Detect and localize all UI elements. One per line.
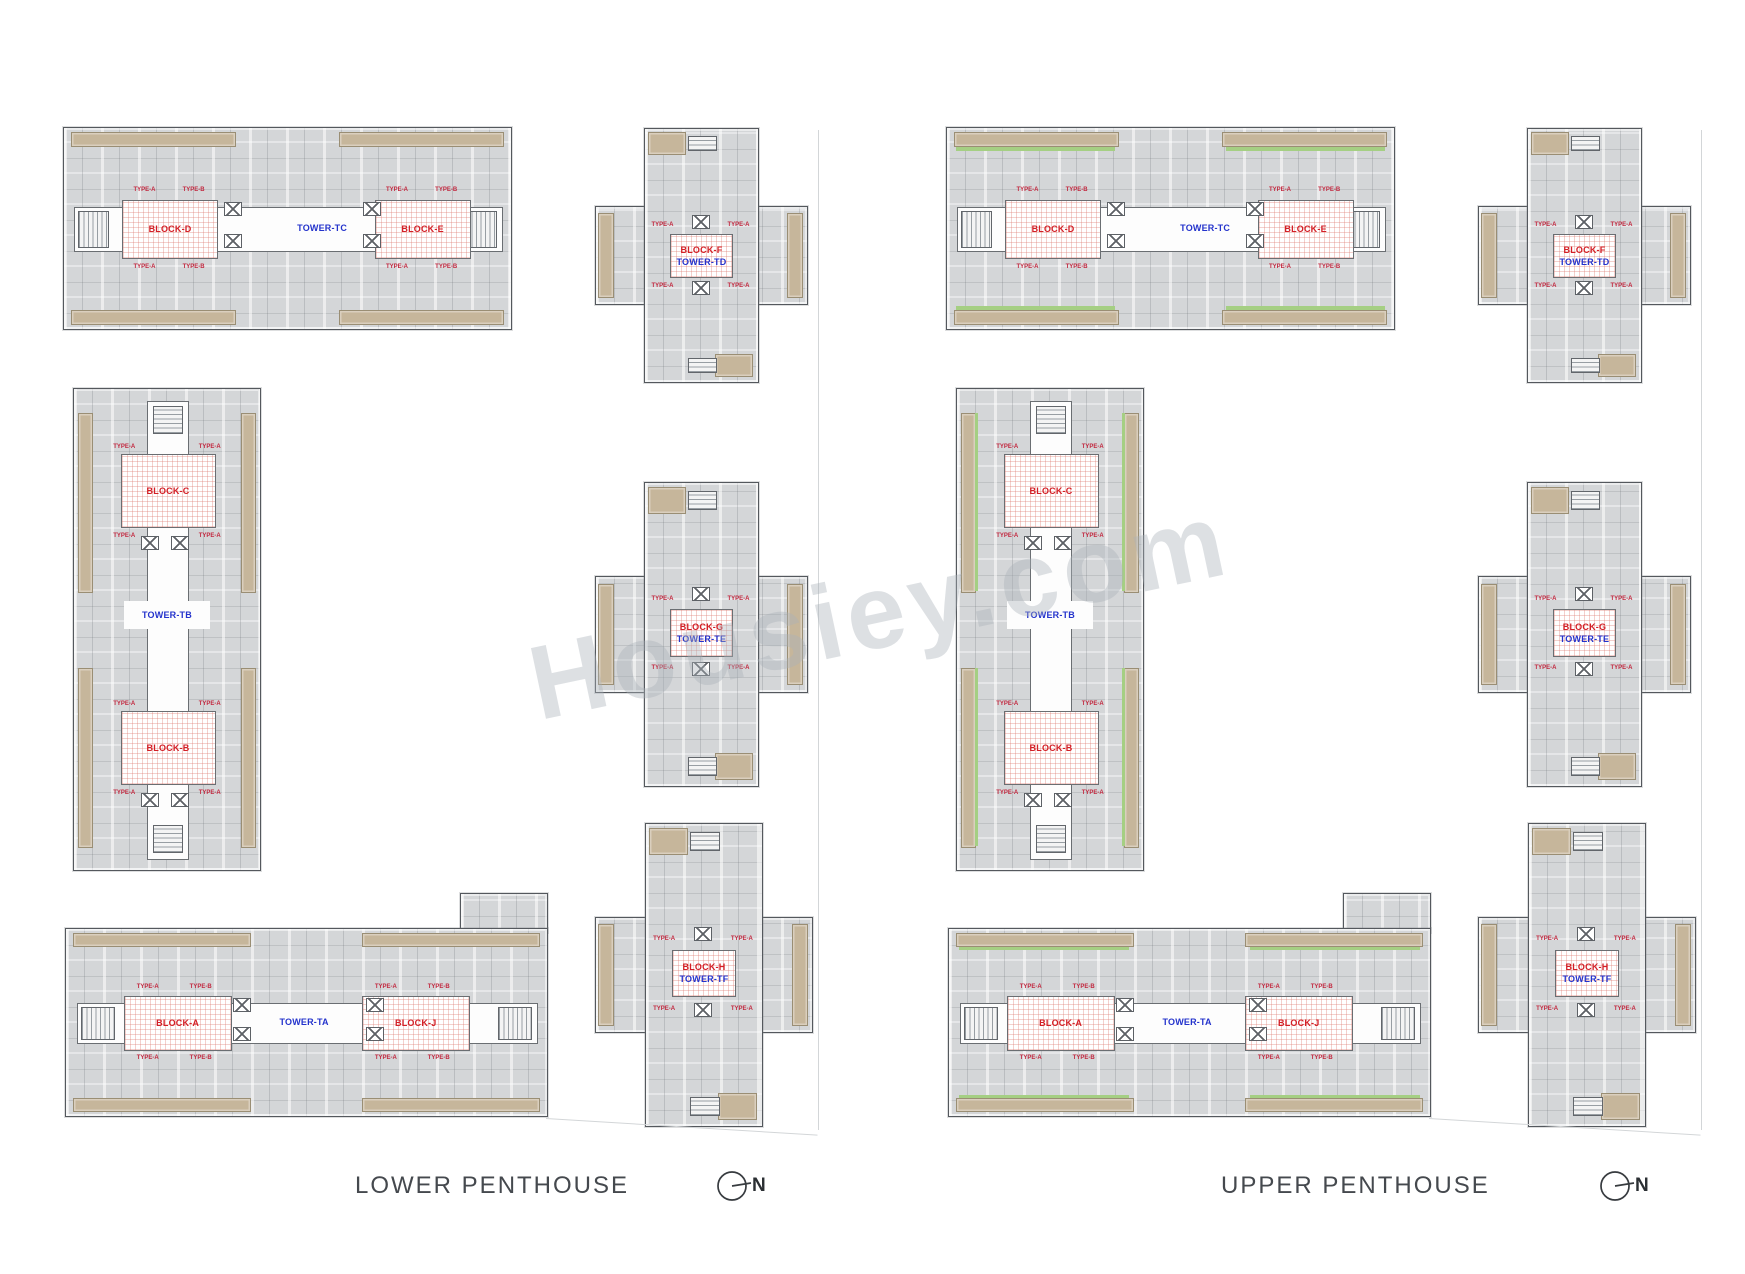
plan-title: LOWER PENTHOUSE (355, 1172, 629, 1200)
unit-type-label: TYPE-A (652, 283, 674, 289)
balcony-terrace (787, 213, 803, 298)
staircase (688, 491, 717, 510)
balcony-terrace (362, 933, 540, 947)
balcony-terrace (1670, 584, 1686, 686)
garden-strip (956, 147, 1115, 151)
unit-type-label: TYPE-A (727, 596, 749, 602)
lift-shaft (363, 234, 381, 248)
unit-type-label: TYPE-B (1073, 984, 1095, 990)
tower-building: BLOCK-G TOWER-TE TYPE-A TYPE-A TYPE-A TY… (1478, 482, 1689, 785)
unit-type-label: TYPE-A (199, 701, 221, 707)
unit-type-label: TYPE-A (113, 444, 135, 450)
balcony-terrace (362, 1098, 540, 1112)
block-label: BLOCK-B (147, 743, 190, 753)
balcony-terrace (715, 354, 753, 378)
unit-type-label: TYPE-A (1020, 984, 1042, 990)
unit-type-label: TYPE-A (1614, 1006, 1636, 1012)
unit-type-label: TYPE-A (1536, 936, 1558, 942)
balcony-terrace (1245, 1098, 1423, 1112)
block-label: BLOCK-H (683, 962, 726, 972)
balcony-terrace (1222, 132, 1387, 147)
balcony-terrace (71, 132, 236, 147)
balcony-terrace (648, 487, 686, 515)
lift-shaft (692, 587, 710, 601)
lift-shaft (1577, 1003, 1595, 1017)
unit-type-label: TYPE-A (652, 596, 674, 602)
unit-type-label: TYPE-A (996, 444, 1018, 450)
staircase (688, 136, 717, 152)
balcony-terrace (1675, 924, 1691, 1026)
unit-type-label: TYPE-A (375, 984, 397, 990)
balcony-terrace (241, 413, 256, 593)
unit-type-label: TYPE-A (113, 533, 135, 539)
staircase (1381, 1007, 1414, 1041)
staircase (1571, 491, 1600, 510)
balcony-terrace (1245, 933, 1423, 947)
garden-strip (1226, 147, 1385, 151)
lift-shaft (1577, 927, 1595, 941)
lift-shaft (233, 1027, 251, 1041)
lift-shaft (1575, 281, 1593, 295)
tower-label: TOWER-TE (677, 634, 726, 644)
balcony-terrace (1481, 924, 1497, 1026)
block-lobby: BLOCK-B (121, 711, 216, 785)
block-label: BLOCK-J (1278, 1018, 1319, 1028)
tower-lobby: BLOCK-H TOWER-TF (672, 950, 737, 997)
balcony-terrace (792, 924, 808, 1026)
tower-label: TOWER-TB (1025, 610, 1075, 620)
unit-type-label: TYPE-A (653, 936, 675, 942)
unit-type-label: TYPE-A (1269, 264, 1291, 270)
unit-type-label: TYPE-B (1066, 187, 1088, 193)
lift-shaft (1246, 202, 1264, 216)
tower-building: BLOCK-G TOWER-TE TYPE-A TYPE-A TYPE-A TY… (595, 482, 806, 785)
lift-shaft (233, 998, 251, 1012)
tower-label: TOWER-TB (142, 610, 192, 620)
unit-type-label: TYPE-A (1016, 187, 1038, 193)
staircase (964, 1007, 997, 1041)
north-label: N (752, 1175, 766, 1197)
balcony-terrace (78, 413, 93, 593)
garden-strip (975, 413, 978, 591)
unit-type-label: TYPE-A (653, 1006, 675, 1012)
unit-type-label: TYPE-A (1535, 665, 1557, 671)
unit-type-label: TYPE-A (1082, 701, 1104, 707)
lift-shaft (694, 1003, 712, 1017)
block-lobby: BLOCK-E (1258, 200, 1354, 258)
staircase (1571, 136, 1600, 152)
lift-shaft (366, 998, 384, 1012)
lift-shaft (1054, 793, 1072, 807)
lift-shaft (224, 202, 242, 216)
unit-type-label: TYPE-A (1535, 222, 1557, 228)
building-top-row: BLOCK-D TOWER-TC BLOCK-E TYPE-A TYPE-B T… (63, 127, 512, 330)
staircase (688, 358, 717, 374)
balcony-terrace (648, 132, 686, 156)
garden-strip (1226, 306, 1385, 310)
unit-type-label: TYPE-A (1082, 533, 1104, 539)
unit-type-label: TYPE-A (133, 187, 155, 193)
block-label: BLOCK-D (149, 224, 192, 234)
staircase (1571, 358, 1600, 374)
garden-strip (959, 1095, 1130, 1098)
garden-strip (956, 306, 1115, 310)
unit-type-label: TYPE-A (137, 984, 159, 990)
lift-shaft (1575, 662, 1593, 676)
unit-type-label: TYPE-B (183, 187, 205, 193)
block-label: BLOCK-H (1566, 962, 1609, 972)
unit-type-label: TYPE-A (1258, 1055, 1280, 1061)
unit-type-label: TYPE-A (1020, 1055, 1042, 1061)
lift-shaft (1249, 1027, 1267, 1041)
staircase (153, 406, 183, 434)
block-label: BLOCK-E (1284, 224, 1326, 234)
tower-lobby: BLOCK-G TOWER-TE (670, 609, 733, 656)
balcony-terrace (71, 310, 236, 325)
block-label: BLOCK-G (680, 622, 723, 632)
block-label: BLOCK-C (147, 486, 190, 496)
tower-building: BLOCK-F TOWER-TD TYPE-A TYPE-A TYPE-A TY… (1478, 128, 1689, 381)
tower-building: BLOCK-F TOWER-TD TYPE-A TYPE-A TYPE-A TY… (595, 128, 806, 381)
tower-building: BLOCK-H TOWER-TF TYPE-A TYPE-A TYPE-A TY… (595, 823, 811, 1125)
staircase (690, 832, 720, 851)
building-bottom-row: BLOCK-A TOWER-TA BLOCK-J TYPE-A TYPE-B T… (65, 928, 548, 1117)
block-lobby: BLOCK-B (1004, 711, 1099, 785)
garden-strip (1122, 413, 1125, 591)
balcony-terrace (718, 1093, 757, 1121)
block-label: BLOCK-F (1564, 245, 1606, 255)
tower-lobby: TOWER-TB (1007, 601, 1093, 630)
unit-type-label: TYPE-A (1082, 444, 1104, 450)
balcony-terrace (339, 132, 504, 147)
lift-shaft (366, 1027, 384, 1041)
block-label: BLOCK-A (1039, 1018, 1082, 1028)
unit-type-label: TYPE-A (199, 444, 221, 450)
block-label: BLOCK-E (401, 224, 443, 234)
unit-type-label: TYPE-A (727, 283, 749, 289)
tower-label: TOWER-TD (1560, 257, 1610, 267)
tower-lobby: TOWER-TA (1127, 1008, 1247, 1036)
lift-shaft (1024, 536, 1042, 550)
balcony-terrace (598, 584, 614, 686)
balcony-terrace (339, 310, 504, 325)
unit-type-label: TYPE-A (727, 222, 749, 228)
block-label: BLOCK-D (1032, 224, 1075, 234)
upper-penthouse-plan: BLOCK-D TOWER-TC BLOCK-E TYPE-A TYPE-B T… (883, 0, 1745, 1274)
tower-lobby: TOWER-TB (124, 601, 210, 630)
lift-shaft (1246, 234, 1264, 248)
block-lobby: BLOCK-A (1007, 996, 1115, 1050)
unit-type-label: TYPE-B (1311, 984, 1333, 990)
balcony-terrace (1481, 584, 1497, 686)
unit-type-label: TYPE-A (199, 790, 221, 796)
tower-lobby: BLOCK-F TOWER-TD (1553, 234, 1616, 278)
unit-type-label: TYPE-A (1614, 936, 1636, 942)
building-side-column: BLOCK-C TOWER-TB BLOCK-B TYPE-A TYPE-A T… (73, 388, 261, 871)
lift-shaft (1116, 998, 1134, 1012)
balcony-terrace (1531, 487, 1569, 515)
unit-type-label: TYPE-A (1610, 596, 1632, 602)
lift-shaft (1107, 202, 1125, 216)
garden-strip (1250, 1095, 1421, 1098)
block-lobby: BLOCK-E (375, 200, 471, 258)
tower-lobby: BLOCK-F TOWER-TD (670, 234, 733, 278)
unit-type-label: TYPE-B (183, 264, 205, 270)
block-label: BLOCK-A (156, 1018, 199, 1028)
unit-type-label: TYPE-B (428, 984, 450, 990)
balcony-terrace (73, 933, 251, 947)
unit-type-label: TYPE-B (435, 264, 457, 270)
unit-type-label: TYPE-B (1073, 1055, 1095, 1061)
tower-label: TOWER-TD (677, 257, 727, 267)
lift-shaft (363, 202, 381, 216)
balcony-terrace (241, 668, 256, 848)
north-indicator: N (716, 1168, 766, 1204)
block-lobby: BLOCK-D (1005, 200, 1101, 258)
lift-shaft (141, 793, 159, 807)
staircase (81, 1007, 114, 1041)
lower-penthouse-plan: BLOCK-D TOWER-TC BLOCK-E TYPE-A TYPE-B T… (0, 0, 872, 1274)
staircase (498, 1007, 531, 1041)
unit-type-label: TYPE-A (652, 665, 674, 671)
tower-label: TOWER-TA (279, 1017, 328, 1027)
unit-type-label: TYPE-A (727, 665, 749, 671)
lift-shaft (171, 793, 189, 807)
unit-type-label: TYPE-A (199, 533, 221, 539)
lift-shaft (1116, 1027, 1134, 1041)
unit-type-label: TYPE-A (133, 264, 155, 270)
tower-label: TOWER-TA (1162, 1017, 1211, 1027)
unit-type-label: TYPE-A (1610, 665, 1632, 671)
unit-type-label: TYPE-A (1016, 264, 1038, 270)
plot-boundary-line (1701, 130, 1702, 1130)
block-lobby: BLOCK-C (121, 454, 216, 528)
balcony-terrace (1598, 354, 1636, 378)
garden-strip (1250, 947, 1421, 950)
staircase (1573, 832, 1603, 851)
lift-shaft (1054, 536, 1072, 550)
lift-shaft (1107, 234, 1125, 248)
unit-type-label: TYPE-A (113, 701, 135, 707)
building-bottom-annex (460, 893, 548, 933)
unit-type-label: TYPE-B (190, 1055, 212, 1061)
north-indicator: N (1599, 1168, 1649, 1204)
unit-type-label: TYPE-B (1066, 264, 1088, 270)
building-bottom-row: BLOCK-A TOWER-TA BLOCK-J TYPE-A TYPE-B T… (948, 928, 1431, 1117)
unit-type-label: TYPE-A (731, 1006, 753, 1012)
lift-shaft (171, 536, 189, 550)
unit-type-label: TYPE-A (652, 222, 674, 228)
balcony-terrace (954, 310, 1119, 325)
balcony-terrace (956, 1098, 1134, 1112)
unit-type-label: TYPE-B (435, 187, 457, 193)
balcony-terrace (73, 1098, 251, 1112)
staircase (1036, 825, 1066, 853)
staircase (1036, 406, 1066, 434)
staircase (961, 211, 992, 247)
staircase (1573, 1097, 1603, 1116)
balcony-terrace (598, 924, 614, 1026)
lift-shaft (692, 281, 710, 295)
unit-type-label: TYPE-A (731, 936, 753, 942)
block-label: BLOCK-B (1030, 743, 1073, 753)
unit-type-label: TYPE-B (190, 984, 212, 990)
unit-type-label: TYPE-A (386, 187, 408, 193)
tower-building: BLOCK-H TOWER-TF TYPE-A TYPE-A TYPE-A TY… (1478, 823, 1694, 1125)
balcony-terrace (598, 213, 614, 298)
balcony-terrace (787, 584, 803, 686)
plan-title: UPPER PENTHOUSE (1221, 1172, 1490, 1200)
balcony-terrace (715, 753, 753, 781)
building-top-row: BLOCK-D TOWER-TC BLOCK-E TYPE-A TYPE-B T… (946, 127, 1395, 330)
block-lobby: BLOCK-A (124, 996, 232, 1050)
lift-shaft (224, 234, 242, 248)
unit-type-label: TYPE-A (1269, 187, 1291, 193)
lift-shaft (692, 662, 710, 676)
balcony-terrace (956, 933, 1134, 947)
balcony-terrace (649, 828, 688, 856)
tower-label: TOWER-TF (680, 974, 729, 984)
balcony-terrace (1124, 413, 1139, 593)
tower-lobby: BLOCK-H TOWER-TF (1555, 950, 1620, 997)
garden-strip (959, 947, 1130, 950)
plot-boundary-line (818, 130, 819, 1130)
unit-type-label: TYPE-A (386, 264, 408, 270)
tower-label: TOWER-TF (1563, 974, 1612, 984)
lift-shaft (694, 927, 712, 941)
block-label: BLOCK-C (1030, 486, 1073, 496)
unit-type-label: TYPE-B (1318, 187, 1340, 193)
unit-type-label: TYPE-B (1318, 264, 1340, 270)
lift-shaft (1575, 587, 1593, 601)
lift-shaft (1575, 215, 1593, 229)
unit-type-label: TYPE-B (428, 1055, 450, 1061)
block-lobby: BLOCK-C (1004, 454, 1099, 528)
lift-shaft (141, 536, 159, 550)
staircase (688, 757, 717, 776)
staircase (78, 211, 109, 247)
balcony-terrace (1222, 310, 1387, 325)
unit-type-label: TYPE-A (1082, 790, 1104, 796)
unit-type-label: TYPE-A (1610, 222, 1632, 228)
lift-shaft (1024, 793, 1042, 807)
building-bottom-annex (1343, 893, 1431, 933)
tower-lobby: TOWER-TA (244, 1008, 364, 1036)
balcony-terrace (961, 413, 976, 593)
tower-label: TOWER-TC (1180, 223, 1230, 233)
unit-type-label: TYPE-A (1536, 1006, 1558, 1012)
staircase (153, 825, 183, 853)
balcony-terrace (1532, 828, 1571, 856)
lift-shaft (692, 215, 710, 229)
unit-type-label: TYPE-A (113, 790, 135, 796)
unit-type-label: TYPE-B (1311, 1055, 1333, 1061)
tower-lobby: BLOCK-G TOWER-TE (1553, 609, 1616, 656)
garden-strip (975, 668, 978, 846)
block-lobby: BLOCK-D (122, 200, 218, 258)
unit-type-label: TYPE-A (1535, 596, 1557, 602)
balcony-terrace (78, 668, 93, 848)
unit-type-label: TYPE-A (1258, 984, 1280, 990)
balcony-terrace (961, 668, 976, 848)
balcony-terrace (1670, 213, 1686, 298)
staircase (1571, 757, 1600, 776)
tower-label: TOWER-TE (1560, 634, 1609, 644)
unit-type-label: TYPE-A (996, 533, 1018, 539)
block-label: BLOCK-J (395, 1018, 436, 1028)
block-label: BLOCK-G (1563, 622, 1606, 632)
balcony-terrace (1531, 132, 1569, 156)
unit-type-label: TYPE-A (375, 1055, 397, 1061)
balcony-terrace (1124, 668, 1139, 848)
block-label: BLOCK-F (681, 245, 723, 255)
garden-strip (1122, 668, 1125, 846)
balcony-terrace (1598, 753, 1636, 781)
unit-type-label: TYPE-A (996, 701, 1018, 707)
tower-label: TOWER-TC (297, 223, 347, 233)
lift-shaft (1249, 998, 1267, 1012)
unit-type-label: TYPE-A (1610, 283, 1632, 289)
balcony-terrace (1481, 213, 1497, 298)
staircase (690, 1097, 720, 1116)
balcony-terrace (1601, 1093, 1640, 1121)
unit-type-label: TYPE-A (996, 790, 1018, 796)
building-side-column: BLOCK-C TOWER-TB BLOCK-B TYPE-A TYPE-A T… (956, 388, 1144, 871)
unit-type-label: TYPE-A (137, 1055, 159, 1061)
north-label: N (1635, 1175, 1649, 1197)
unit-type-label: TYPE-A (1535, 283, 1557, 289)
balcony-terrace (954, 132, 1119, 147)
